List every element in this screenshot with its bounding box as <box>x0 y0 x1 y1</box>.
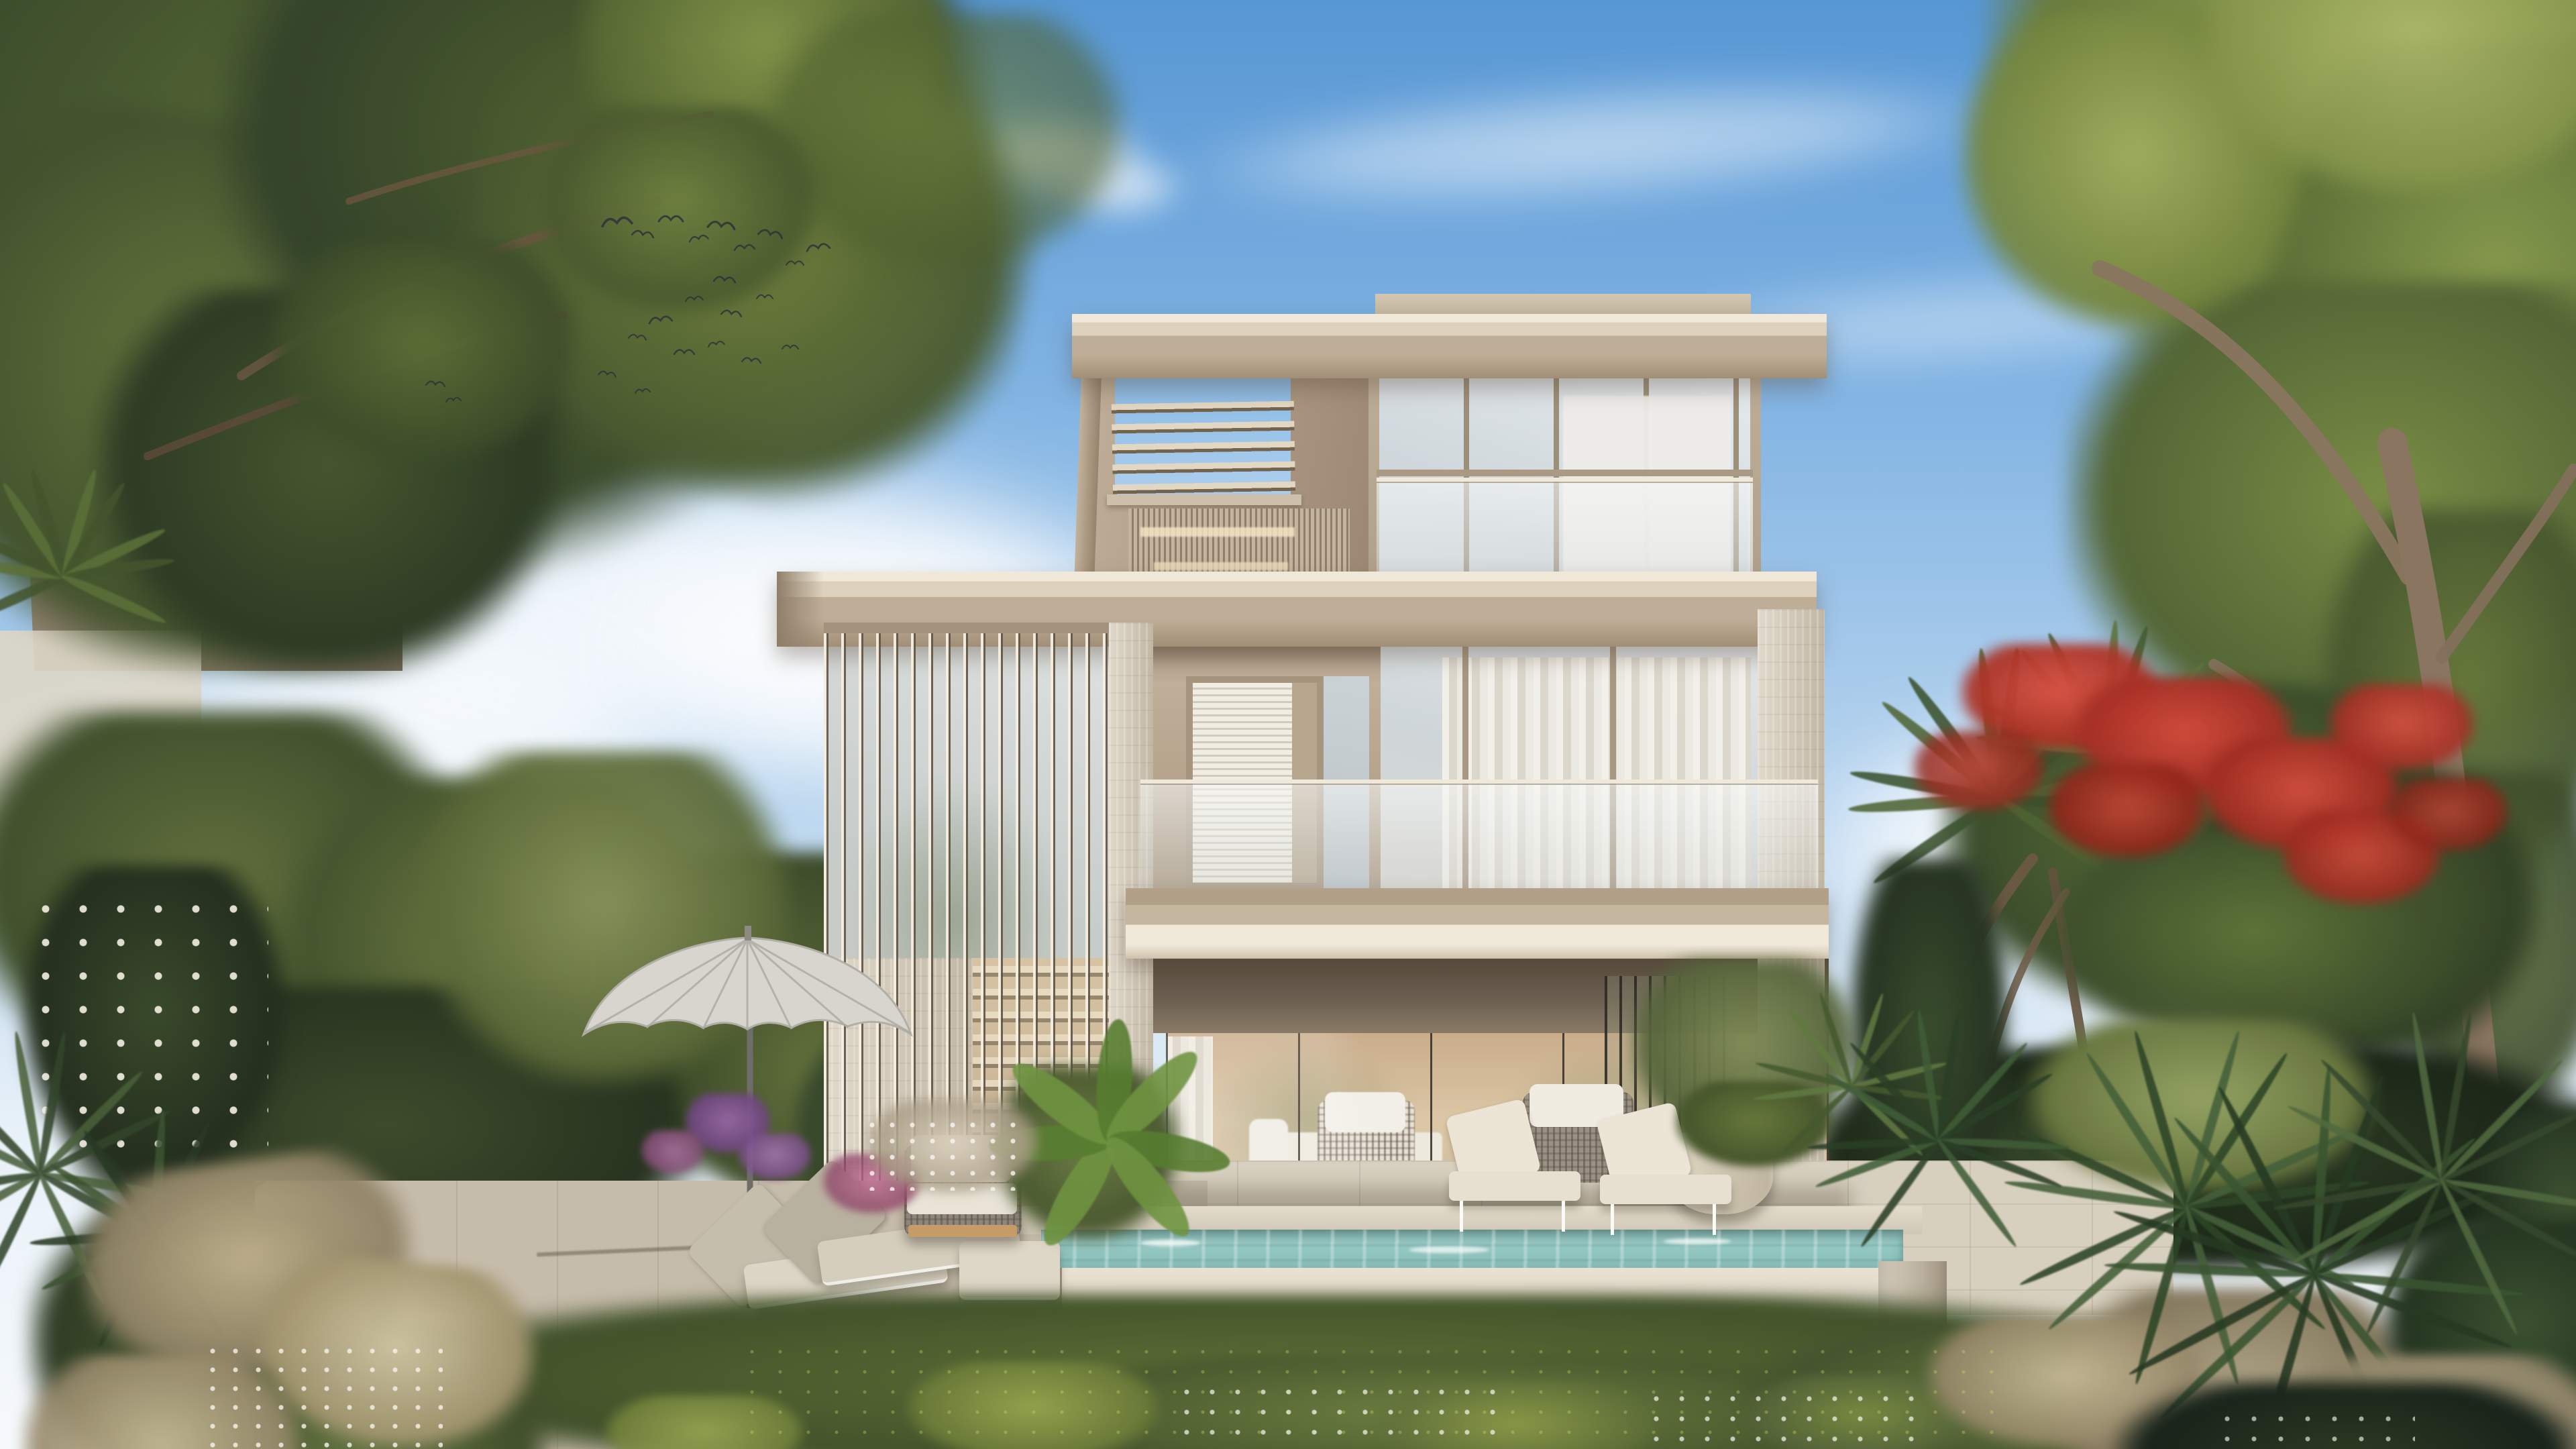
meadow-tuft-yellow <box>1375 1382 1657 1449</box>
bird <box>598 371 616 377</box>
recliner-leg <box>1713 1204 1716 1235</box>
olive-behind-umbrella <box>416 751 792 1087</box>
water-glint <box>1409 1246 1489 1253</box>
bird <box>786 261 804 265</box>
purple-flowers <box>738 1134 812 1181</box>
poinciana-red <box>1959 644 2160 751</box>
poinciana-red <box>2046 765 2207 859</box>
jungle-plume <box>2267 1355 2576 1449</box>
penthouse-transom-bar <box>1377 470 1753 476</box>
louver-volume-header <box>824 623 1109 633</box>
poinciana-green <box>2167 771 2542 1067</box>
bird <box>686 296 703 301</box>
bird <box>714 276 735 282</box>
left-tree-sparse <box>765 13 1127 268</box>
right-tree-canopy <box>2066 282 2576 765</box>
right-tree-canopy <box>1986 0 2576 423</box>
bird <box>426 381 445 386</box>
date-palm <box>1966 610 2247 892</box>
cloud <box>1046 154 1187 218</box>
bird <box>674 350 694 354</box>
fan-palm <box>2261 1000 2576 1362</box>
right-tree-lower <box>2321 510 2576 885</box>
bird <box>806 243 830 251</box>
recliner-seat <box>1600 1175 1731 1204</box>
bird <box>602 217 632 226</box>
pergola-slats <box>1112 401 1295 502</box>
poinciana-red <box>2328 684 2475 771</box>
cloud <box>1171 58 2016 231</box>
plumeria-flowers <box>27 892 268 1161</box>
jungle-dark-under <box>2113 1382 2576 1449</box>
balcony-slab <box>1126 888 1829 959</box>
cloud <box>1805 711 2241 979</box>
mid-balcony-railing <box>1140 780 1818 893</box>
bird <box>446 397 461 402</box>
plumeria-base <box>20 865 288 1187</box>
right-tree-highlight <box>2200 0 2576 195</box>
bird <box>708 341 724 347</box>
recliner-chair <box>1449 1107 1590 1207</box>
penthouse-roof-slab <box>1072 314 1827 378</box>
left-tree-highlight <box>577 0 953 201</box>
pool-near-coping <box>1000 1268 1935 1311</box>
bird <box>689 235 708 242</box>
mid-slab-side-return <box>777 572 824 647</box>
bird <box>708 221 735 229</box>
neighbor-house-roof <box>27 376 402 671</box>
ottoman <box>959 1241 1060 1300</box>
left-tree-canopy <box>415 0 1068 551</box>
armchair-seat <box>907 1183 1017 1214</box>
bird <box>735 244 755 250</box>
recliner-leg <box>1562 1201 1565 1232</box>
poinciana-red <box>2388 778 2509 852</box>
poinciana-red <box>2200 738 2402 852</box>
bird <box>632 230 654 237</box>
white-meadow-flowers <box>1174 1382 1509 1449</box>
louver-sun-streak <box>1140 527 1295 537</box>
water-glint <box>1140 1240 1201 1246</box>
fan-palm-left <box>0 1020 195 1328</box>
bird <box>721 310 742 317</box>
bird <box>782 345 798 349</box>
poinciana-red <box>2281 812 2442 906</box>
bird <box>649 316 672 323</box>
bird <box>629 334 646 339</box>
poinciana-fern <box>2053 832 2455 1053</box>
water-glint <box>1664 1238 1731 1244</box>
poinciana-green <box>1939 684 2449 1020</box>
paver-step-right <box>1864 1337 2155 1409</box>
recliner-leg <box>1611 1204 1614 1235</box>
bird <box>758 229 783 238</box>
fan-palm-left <box>20 1100 288 1368</box>
bird <box>757 295 773 299</box>
neighbor-house-wall <box>0 631 201 845</box>
date-palm <box>1838 637 2160 959</box>
poinciana-red <box>1912 731 2046 812</box>
pergola-beam <box>1107 494 1301 505</box>
jungle-dark <box>2381 1221 2576 1449</box>
bird <box>659 216 683 221</box>
lounger-wheel <box>729 1305 770 1346</box>
recliner-leg <box>1460 1201 1463 1232</box>
armchair-wood-base <box>908 1225 1017 1237</box>
bird <box>635 388 650 393</box>
purple-flowers <box>641 1130 704 1174</box>
louver-sun-streak <box>1154 562 1288 570</box>
armchair-cushion <box>911 1135 1012 1182</box>
white-meadow-flowers <box>2214 1409 2415 1449</box>
left-tree-canopy <box>221 0 993 436</box>
cloud <box>959 114 1147 195</box>
villa-exterior-scene <box>0 0 2576 1449</box>
recliner-chair <box>1600 1110 1741 1211</box>
left-tree-tuft <box>537 107 818 315</box>
left-garden-olive <box>282 778 724 1140</box>
recliner-seat <box>1449 1171 1580 1201</box>
cloud <box>2428 892 2576 1046</box>
right-tree-canopy <box>2254 40 2576 590</box>
cloud <box>2012 839 2495 1060</box>
poinciana-red <box>2073 678 2294 798</box>
purple-flowers <box>684 1093 771 1154</box>
right-tree-lower <box>2388 771 2576 1120</box>
right-tree-highlight <box>1959 13 2308 329</box>
bird <box>742 358 761 363</box>
boundary-hedge-right <box>2475 1107 2576 1308</box>
